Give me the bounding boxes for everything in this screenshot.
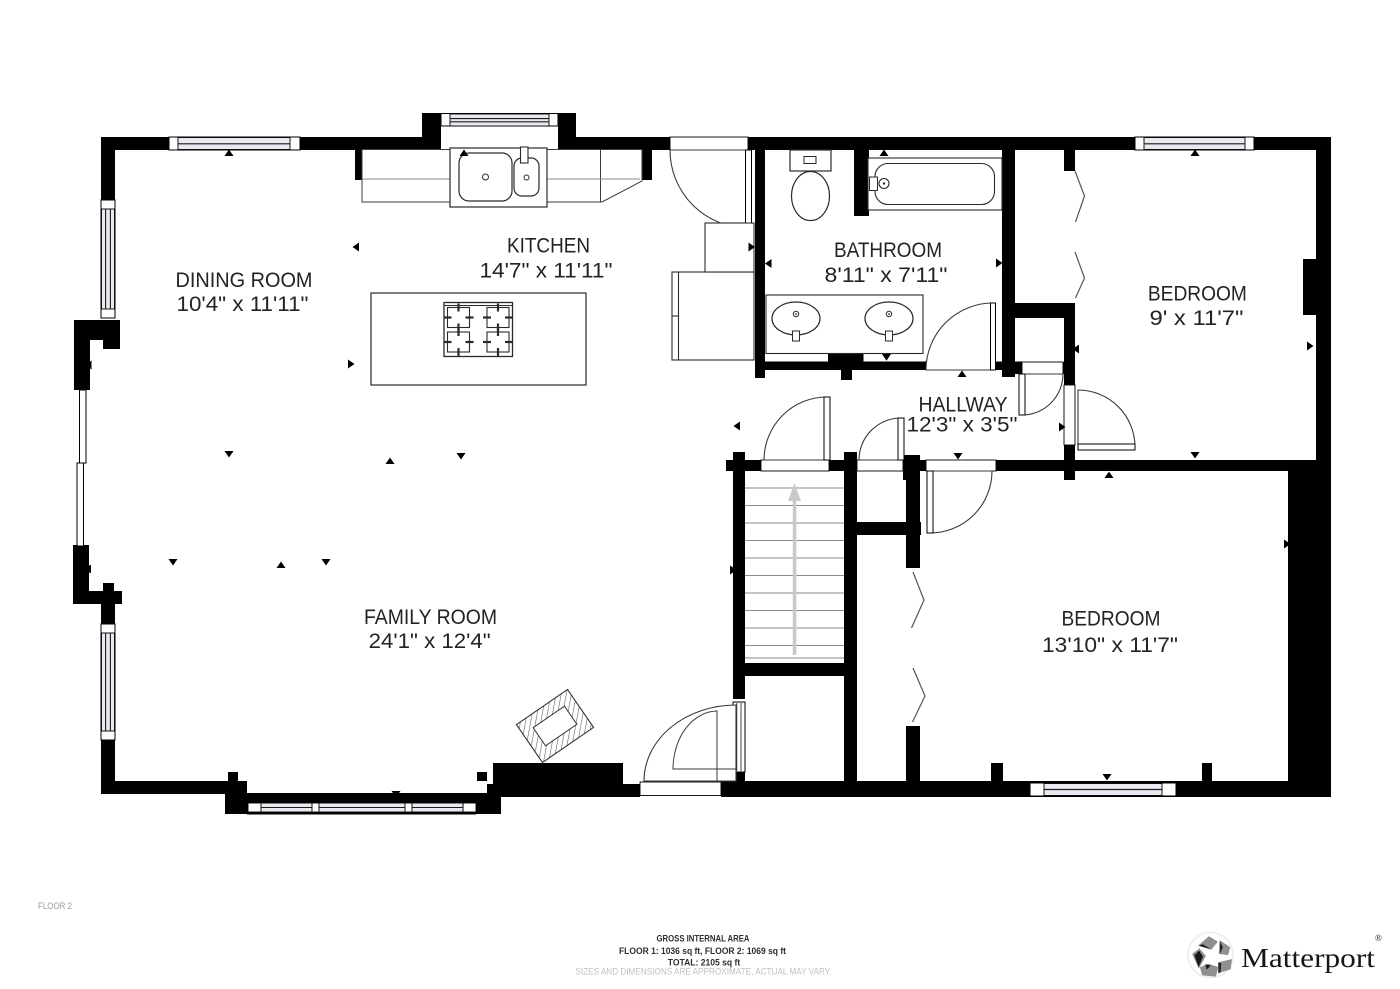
svg-text:DINING ROOM: DINING ROOM	[176, 269, 313, 292]
svg-text:®: ®	[1375, 933, 1382, 943]
svg-text:9' x 11'7": 9' x 11'7"	[1150, 306, 1244, 330]
svg-text:10'4" x 11'11": 10'4" x 11'11"	[177, 292, 309, 316]
svg-text:BEDROOM: BEDROOM	[1148, 283, 1247, 306]
svg-text:8'11" x 7'11": 8'11" x 7'11"	[825, 263, 948, 287]
svg-text:FLOOR 1: 1036 sq ft, FLOOR 2:: FLOOR 1: 1036 sq ft, FLOOR 2: 1069 sq ft	[619, 946, 786, 956]
svg-text:12'3" x 3'5": 12'3" x 3'5"	[907, 413, 1018, 437]
svg-text:FAMILY ROOM: FAMILY ROOM	[364, 606, 497, 629]
svg-text:GROSS INTERNAL AREA: GROSS INTERNAL AREA	[657, 934, 750, 944]
svg-text:SIZES AND DIMENSIONS ARE APPRO: SIZES AND DIMENSIONS ARE APPROXIMATE, AC…	[575, 967, 831, 977]
svg-text:14'7" x 11'11": 14'7" x 11'11"	[480, 259, 613, 283]
svg-text:24'1" x 12'4": 24'1" x 12'4"	[369, 629, 491, 653]
svg-text:13'10" x 11'7": 13'10" x 11'7"	[1042, 633, 1178, 657]
svg-text:Matterport: Matterport	[1241, 942, 1375, 973]
svg-text:KITCHEN: KITCHEN	[507, 235, 590, 258]
svg-text:FLOOR 2: FLOOR 2	[38, 901, 72, 911]
svg-text:BEDROOM: BEDROOM	[1062, 608, 1161, 631]
svg-text:BATHROOM: BATHROOM	[834, 239, 942, 262]
